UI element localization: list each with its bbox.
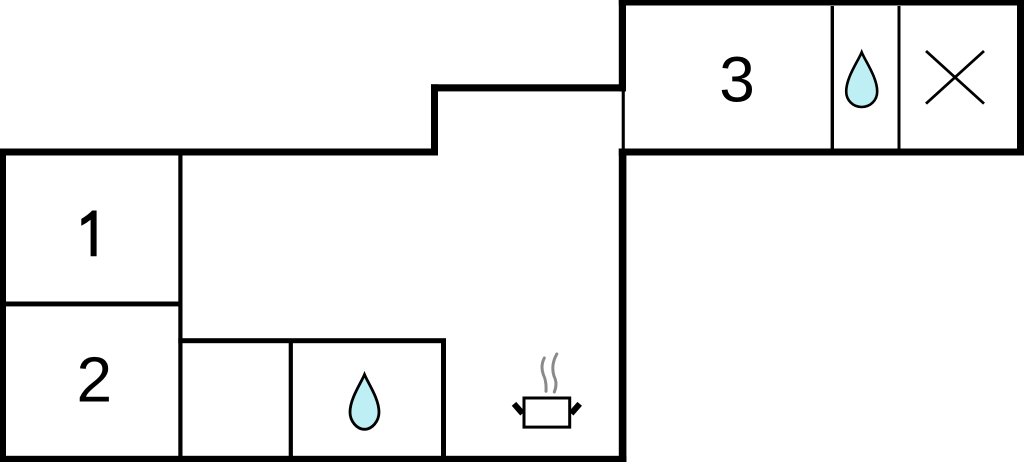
svg-text:2: 2 bbox=[77, 344, 113, 416]
svg-text:3: 3 bbox=[719, 43, 755, 115]
